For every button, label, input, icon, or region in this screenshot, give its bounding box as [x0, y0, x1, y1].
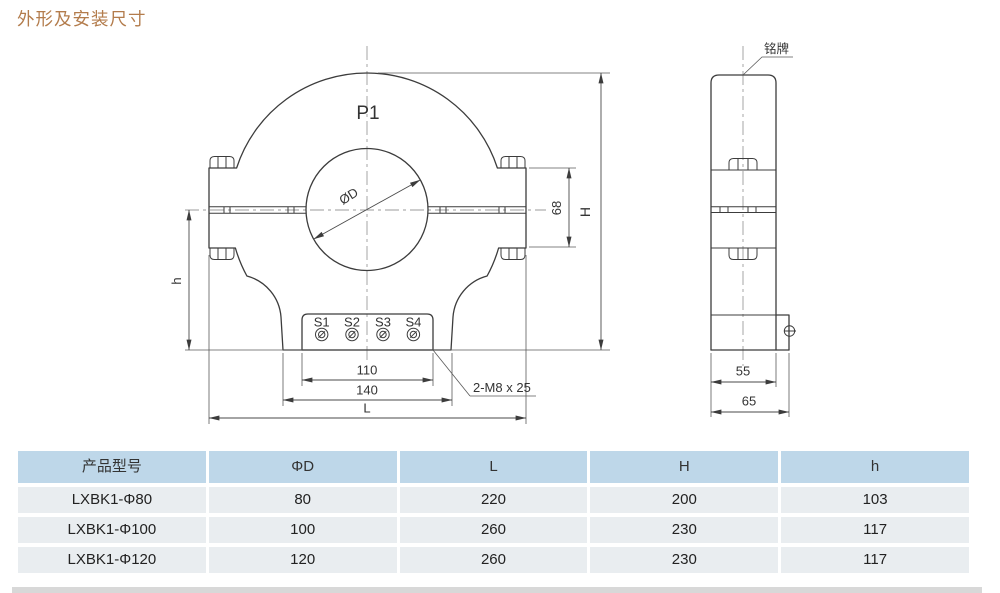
- terminal-label-s3: S3: [375, 315, 391, 330]
- bolt-icon: [210, 248, 234, 260]
- terminal-screw-icon: [346, 328, 358, 340]
- bolt-icon: [501, 248, 525, 260]
- cell-phi-d: 100: [209, 517, 397, 543]
- dimension-spec-page: 外形及安装尺寸: [0, 0, 1000, 593]
- callout-leader: [433, 350, 470, 396]
- terminal-screw-icon: [316, 328, 328, 340]
- aperture-diameter-label: ØD: [336, 185, 360, 208]
- cell-L: 260: [400, 517, 588, 543]
- dim-L-label: L: [363, 401, 370, 416]
- cell-L: 260: [400, 547, 588, 573]
- cell-H: 200: [590, 487, 778, 513]
- side-view: 铭牌 55 65: [711, 41, 796, 417]
- dim-65-label: 65: [742, 394, 756, 409]
- front-view: ØD P1 S1 S2 S3 S4: [169, 46, 610, 424]
- cell-model: LXBK1-Φ80: [18, 487, 206, 513]
- column-header-H: H: [590, 451, 778, 483]
- cell-phi-d: 80: [209, 487, 397, 513]
- cell-L: 220: [400, 487, 588, 513]
- mounting-bolt-label: 2-M8 x 25: [473, 380, 531, 395]
- dim-140-label: 140: [356, 383, 378, 398]
- cell-model: LXBK1-Φ120: [18, 547, 206, 573]
- dim-55-label: 55: [736, 364, 750, 379]
- cell-phi-d: 120: [209, 547, 397, 573]
- bolt-icon: [210, 157, 234, 169]
- side-terminal-box: [776, 315, 789, 350]
- bolt-icon: [501, 157, 525, 169]
- terminal-screw-icon: [377, 328, 389, 340]
- column-header-model: 产品型号: [18, 451, 206, 483]
- column-header-h: h: [781, 451, 969, 483]
- cell-h: 117: [781, 547, 969, 573]
- p1-terminal-label: P1: [356, 103, 379, 124]
- dim-110-label: 110: [357, 363, 378, 378]
- side-terminal-screw-icon: [784, 326, 796, 336]
- side-section-lines: [711, 170, 776, 315]
- cell-H: 230: [590, 547, 778, 573]
- dim-68-label: 68: [549, 201, 564, 215]
- terminal-screw-icon: [407, 328, 419, 340]
- spec-table: 产品型号 ΦD L H h LXBK1-Φ80 80 220 200 103 L…: [18, 451, 969, 573]
- terminal-label-s4: S4: [405, 315, 421, 330]
- extension-lines: [209, 73, 610, 424]
- column-header-phi-d: ΦD: [209, 451, 397, 483]
- terminal-label-s1: S1: [314, 315, 330, 330]
- bottom-divider: [12, 587, 982, 593]
- nameplate-leader: [743, 57, 793, 75]
- cell-model: LXBK1-Φ100: [18, 517, 206, 543]
- cell-h: 103: [781, 487, 969, 513]
- dim-H-label: H: [577, 207, 593, 217]
- cell-h: 117: [781, 517, 969, 543]
- cell-H: 230: [590, 517, 778, 543]
- nameplate-label: 铭牌: [764, 41, 789, 56]
- terminal-label-s2: S2: [344, 315, 360, 330]
- secondary-terminals: S1 S2 S3 S4: [314, 315, 422, 341]
- column-header-L: L: [400, 451, 588, 483]
- dim-h-label: h: [169, 277, 184, 284]
